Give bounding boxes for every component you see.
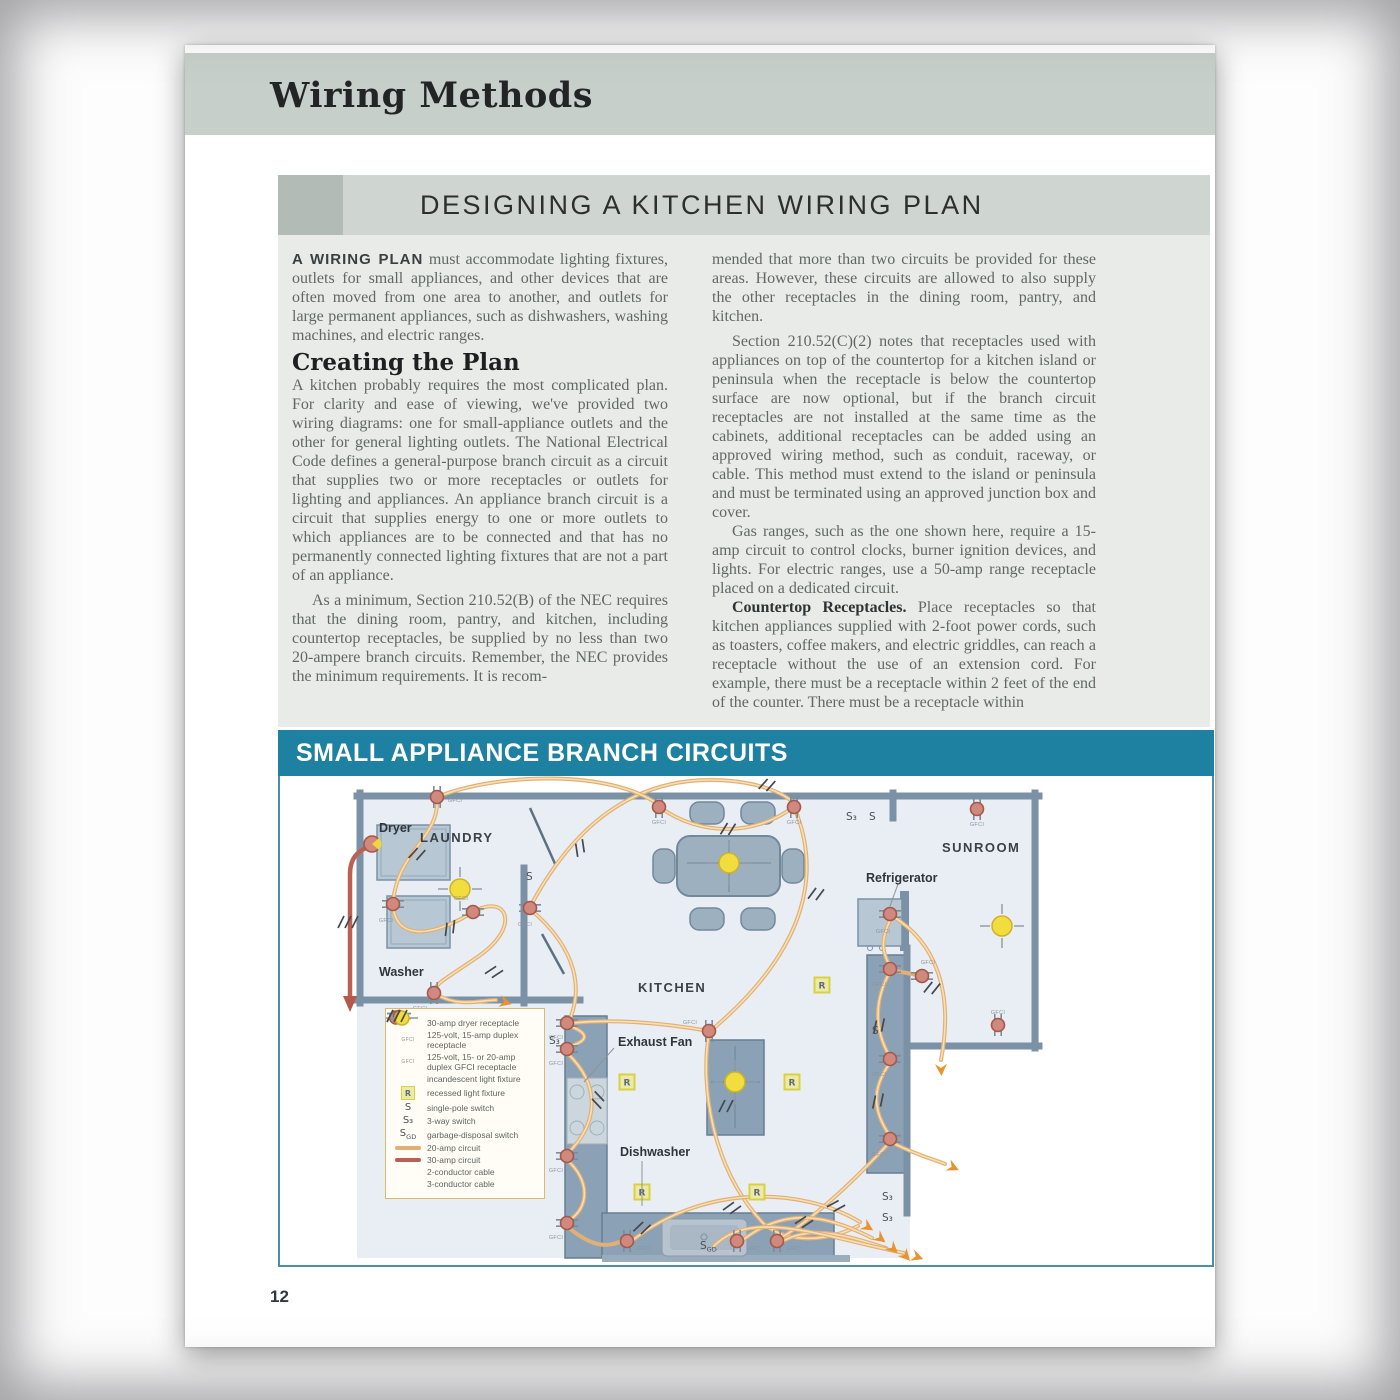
article-column-right: mended that more than two circuits be pr… — [712, 250, 1096, 712]
svg-text:GFCI: GFCI — [549, 1235, 564, 1241]
paragraph: As a minimum, Section 210.52(B) of the N… — [292, 591, 668, 686]
gfci-receptacle-icon: GFCI — [392, 1060, 424, 1065]
paragraph: A WIRING PLAN must accommodate lighting … — [292, 250, 668, 345]
refrigerator-appliance — [858, 899, 902, 946]
recessed-light — [620, 1075, 635, 1090]
legend-item-2-conductor-cable: 2-conductor cable — [392, 1167, 539, 1177]
svg-text:GFCI: GFCI — [637, 1246, 652, 1252]
circuit-arrow — [935, 1064, 947, 1076]
chair — [690, 908, 724, 930]
chapter-banner: Wiring Methods — [185, 53, 1215, 135]
svg-text:GFCI: GFCI — [549, 1035, 564, 1041]
diagram-legend: 30-amp dryer receptacle GFCI 125-volt, 1… — [385, 1008, 545, 1199]
svg-text:GFCI: GFCI — [787, 820, 802, 826]
three-way-switch-symbol: S₃ — [403, 1115, 413, 1126]
svg-text:GFCI: GFCI — [454, 896, 469, 902]
recessed-light — [750, 1185, 765, 1200]
circuit-arrow — [945, 1160, 961, 1176]
paragraph: Countertop Receptacles. Place receptacle… — [712, 598, 1096, 712]
chair — [741, 908, 775, 930]
garbage-disposal-switch-symbol: SGD — [400, 1128, 416, 1141]
switch-label: S₃ — [882, 1212, 893, 1224]
svg-text:GFCI: GFCI — [921, 960, 936, 966]
dryer-receptacle — [364, 836, 381, 852]
subheading: Creating the Plan — [292, 353, 668, 372]
legend-item-30-amp-circuit: 30-amp circuit — [392, 1155, 539, 1165]
book-page: Wiring Methods DESIGNING A KITCHEN WIRIN… — [185, 45, 1215, 1347]
switch-label: S — [869, 811, 876, 823]
chapter-title: Wiring Methods — [185, 53, 1215, 139]
section-tab-accent — [278, 175, 343, 235]
legend-item-gfci-receptacle: GFCI 125-volt, 15- or 20-amp duplex GFCI… — [392, 1052, 539, 1072]
svg-text:GFCI: GFCI — [970, 822, 985, 828]
30-amp-arrow — [343, 996, 357, 1012]
article-column-left: A WIRING PLAN must accommodate lighting … — [292, 250, 668, 686]
paragraph: A kitchen probably requires the most com… — [292, 376, 668, 585]
svg-text:GFCI: GFCI — [872, 982, 887, 988]
legend-item-duplex-receptacle: GFCI 125-volt, 15-amp duplex receptacle — [392, 1030, 539, 1050]
svg-text:GFCI: GFCI — [518, 922, 533, 928]
paragraph: Gas ranges, such as the one shown here, … — [712, 522, 1096, 598]
circuit-arrow — [910, 1249, 925, 1264]
page-number: 12 — [270, 1287, 289, 1307]
paragraph: mended that more than two circuits be pr… — [712, 250, 1096, 326]
diagram-banner-title: SMALL APPLIANCE BRANCH CIRCUITS — [278, 730, 1214, 776]
legend-item-3-conductor-cable: 3-conductor cable — [392, 1179, 539, 1189]
svg-text:GFCI: GFCI — [549, 1061, 564, 1067]
svg-text:GFCI: GFCI — [747, 1246, 762, 1252]
legend-item-20-amp-circuit: 20-amp circuit — [392, 1143, 539, 1153]
svg-text:GFCI: GFCI — [652, 820, 667, 826]
room-label-laundry: LAUNDRY — [420, 830, 494, 845]
room-label-sunroom: SUNROOM — [942, 840, 1020, 855]
paragraph-lead: A WIRING PLAN — [292, 251, 423, 268]
chair — [782, 849, 804, 883]
chair — [653, 849, 675, 883]
photo-backdrop: Wiring Methods DESIGNING A KITCHEN WIRIN… — [0, 0, 1400, 1400]
paragraph-lead: Countertop Receptacles. — [732, 599, 906, 616]
label-exhaust-fan: Exhaust Fan — [618, 1035, 692, 1049]
svg-text:GFCI: GFCI — [872, 1072, 887, 1078]
recessed-light — [815, 978, 830, 993]
svg-text:GFCI: GFCI — [448, 798, 463, 804]
single-pole-switch-symbol: S — [405, 1102, 411, 1113]
legend-item-recessed-light: R recessed light fixture — [392, 1086, 539, 1100]
svg-text:GFCI: GFCI — [876, 929, 891, 935]
20-amp-circuit-icon — [392, 1146, 424, 1150]
section-header-bar: DESIGNING A KITCHEN WIRING PLAN — [278, 175, 1210, 235]
svg-text:GFCI: GFCI — [991, 1010, 1006, 1016]
article-section: DESIGNING A KITCHEN WIRING PLAN A WIRING… — [278, 175, 1210, 727]
svg-text:GFCI: GFCI — [549, 1168, 564, 1174]
label-washer: Washer — [379, 965, 424, 979]
30-amp-circuit-icon — [392, 1158, 424, 1162]
chair — [690, 802, 724, 824]
switch-label: S — [872, 1025, 879, 1037]
diagram-panel: SMALL APPLIANCE BRANCH CIRCUITS — [278, 730, 1214, 1267]
label-dishwasher: Dishwasher — [620, 1145, 690, 1159]
recessed-light — [785, 1075, 800, 1090]
recessed-light-icon: R — [392, 1086, 424, 1100]
label-refrigerator: Refrigerator — [866, 871, 938, 885]
svg-text:GFCI: GFCI — [379, 918, 394, 924]
legend-item-three-way-switch: S₃ 3-way switch — [392, 1115, 539, 1126]
diagram-body: R — [278, 776, 1214, 1267]
duplex-receptacle-icon: GFCI — [392, 1038, 424, 1043]
room-label-kitchen: KITCHEN — [638, 980, 706, 995]
section-title: DESIGNING A KITCHEN WIRING PLAN — [343, 175, 1210, 235]
legend-item-garbage-disposal-switch: SGD garbage-disposal switch — [392, 1128, 539, 1141]
legend-item-single-pole-switch: S single-pole switch — [392, 1102, 539, 1113]
svg-text:GFCI: GFCI — [683, 1020, 698, 1026]
label-dryer: Dryer — [379, 821, 412, 835]
svg-text:GFCI: GFCI — [787, 1246, 802, 1252]
switch-label: S₃ — [882, 1191, 893, 1203]
legend-item-incandescent-light: incandescent light fixture — [392, 1074, 539, 1084]
svg-text:GFCI: GFCI — [872, 1152, 887, 1158]
switch-label: S — [526, 871, 533, 883]
switch-label: S₃ — [846, 811, 857, 823]
paragraph: Section 210.52(C)(2) notes that receptac… — [712, 332, 1096, 522]
